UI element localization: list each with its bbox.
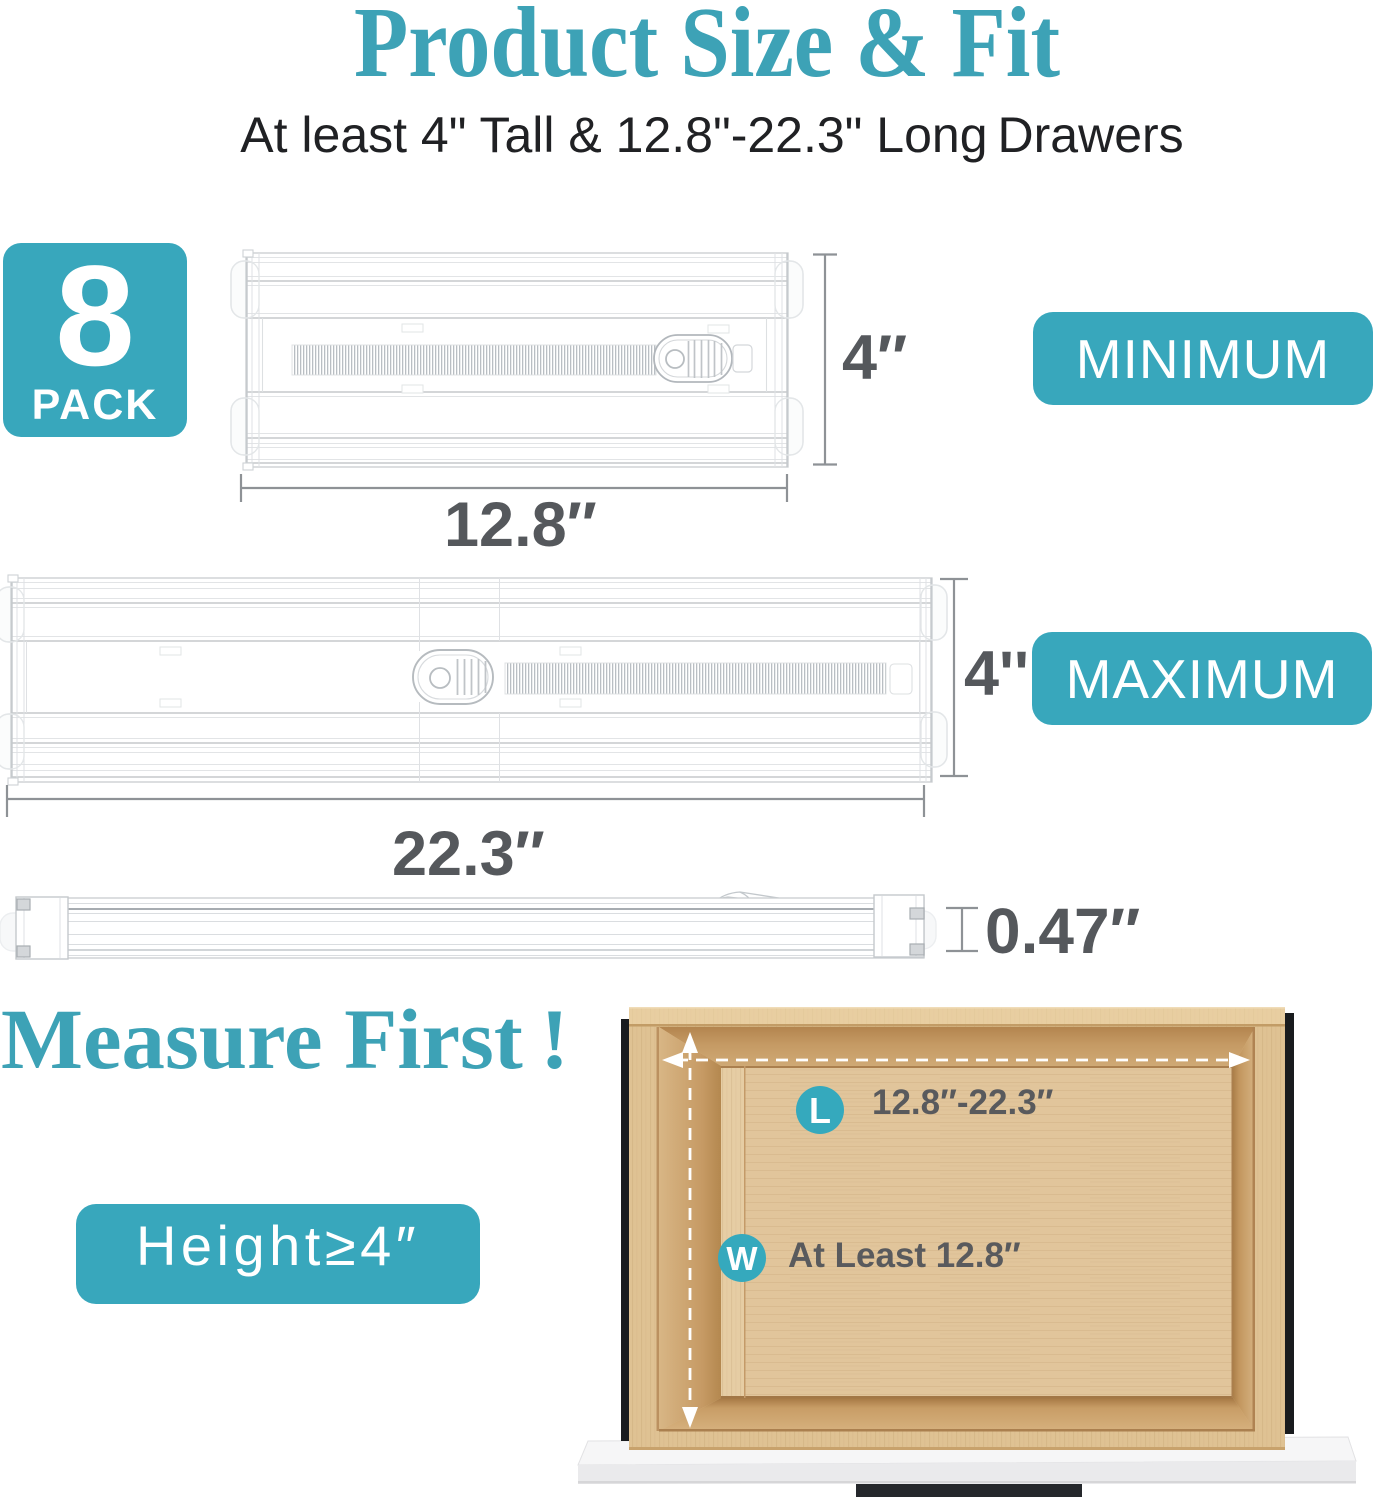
svg-text:W: W [726,1240,758,1277]
svg-text:L: L [809,1090,831,1131]
